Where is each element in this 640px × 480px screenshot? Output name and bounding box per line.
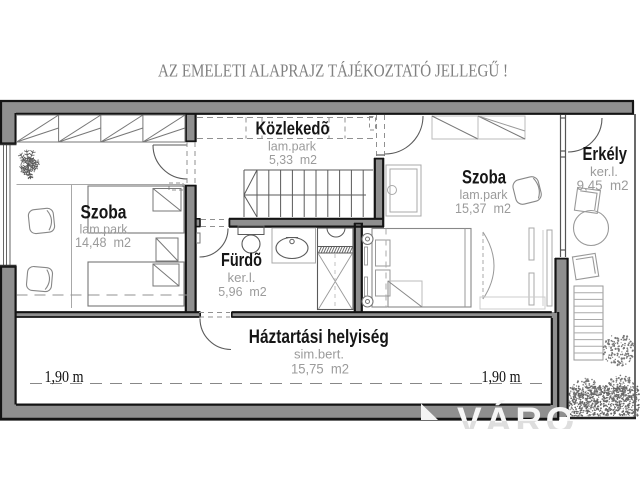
svg-text:15,37 m2: 15,37 m2	[455, 201, 511, 216]
svg-text:1,90 m: 1,90 m	[45, 367, 84, 386]
svg-text:1,90 m: 1,90 m	[482, 367, 521, 386]
svg-text:ker.l.: ker.l.	[590, 165, 618, 179]
svg-text:sim.bert.: sim.bert.	[294, 348, 344, 362]
svg-text:Erkély: Erkély	[583, 144, 628, 164]
svg-text:Fürdõ: Fürdõ	[221, 250, 262, 270]
svg-text:15,75 m2: 15,75 m2	[291, 362, 349, 377]
svg-text:Háztartási helyiség: Háztartási helyiség	[249, 326, 389, 348]
svg-text:ker.l.: ker.l.	[228, 271, 256, 285]
svg-text:5,33 m2: 5,33 m2	[269, 152, 317, 167]
svg-text:9,45 m2: 9,45 m2	[577, 178, 629, 193]
svg-text:5,96 m2: 5,96 m2	[218, 284, 267, 299]
svg-text:Közlekedõ: Közlekedõ	[256, 118, 330, 139]
svg-text:AZ EMELETI ALAPRAJZ TÁJÉKOZTAT: AZ EMELETI ALAPRAJZ TÁJÉKOZTATÓ JELLEGŰ …	[158, 61, 508, 81]
svg-text:lam.park: lam.park	[460, 187, 508, 202]
svg-text:Szoba: Szoba	[81, 203, 127, 224]
svg-text:14,48 m2: 14,48 m2	[75, 235, 131, 250]
svg-text:Szoba: Szoba	[462, 167, 506, 188]
